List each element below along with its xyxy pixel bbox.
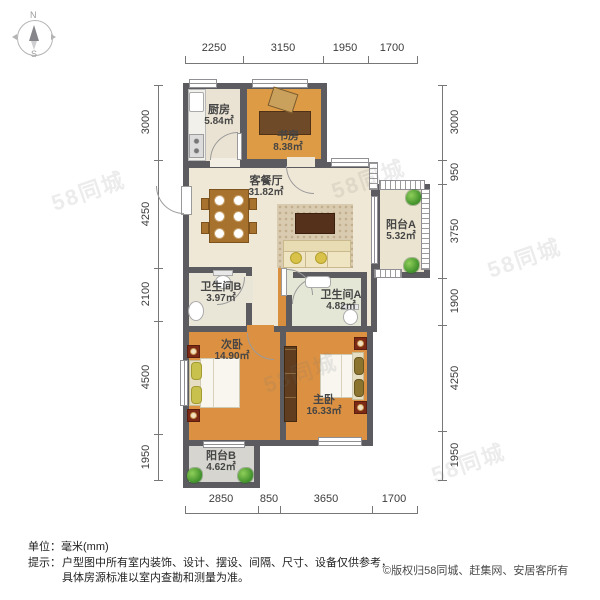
dim-right-5: 4250 [449,366,461,390]
master-bed-pillow [354,357,364,375]
compass-west-arrow [12,34,17,40]
floorplan-page: { "compass": { "north": "N", "south": "S… [0,0,600,600]
room-area: 31.82㎡ [248,187,283,199]
dim-left-4: 4500 [140,365,152,389]
dim-top-2: 3150 [271,42,295,54]
tv-cabinet [295,213,335,234]
dining-plate [233,228,244,239]
tip-line1: 户型图中所有室内装饰、设计、摆设、间隔、尺寸、设备仅供参考， [62,554,392,570]
room-name: 厨房 [204,104,233,116]
second-bedroom-window [180,360,188,406]
dim-top-3: 1950 [333,42,357,54]
wall-decor [354,401,367,414]
compass-south-label: S [31,49,37,59]
second-bedroom-door-gap [247,325,274,333]
compass: N S [8,6,60,64]
room-name: 主卧 [306,394,341,406]
master-bedroom-window [318,437,362,446]
bath-a-sink [305,276,331,288]
sofa-pillow [315,252,327,264]
wall-decor [187,409,200,422]
dining-chair [249,222,257,234]
kitchen-window [189,79,217,88]
dining-plate [233,211,244,222]
room-label-balcony-a: 阳台A 5.32㎡ [386,219,416,243]
dim-top-1: 2250 [202,42,226,54]
room-area: 8.38㎡ [273,142,302,154]
dim-top-4: 1700 [380,42,404,54]
watermark: 58同城 [47,162,130,217]
room-label-kitchen: 厨房 5.84㎡ [204,104,233,128]
compass-east-arrow [51,34,56,40]
copyright-note: ©版权归58同城、赶集网、安居客所有 [383,562,568,578]
unit-note: 单位：毫米(mm) [28,538,109,554]
room-label-second-bedroom: 次卧 14.90㎡ [214,339,249,363]
plant-icon [238,468,253,483]
dining-plate [214,228,225,239]
dining-plate [214,195,225,206]
room-name: 次卧 [214,339,249,351]
room-name: 阳台B [206,450,236,462]
dining-chair [249,198,257,210]
dim-left-1: 3000 [140,110,152,134]
room-name: 卫生间A [321,289,362,301]
room-name: 书房 [273,130,302,142]
dim-bottom-3: 3650 [314,493,338,505]
plant-icon [404,258,419,273]
master-bed-pillow [354,379,364,397]
room-label-bath-a: 卫生间A 4.82㎡ [321,289,362,313]
room-label-study: 书房 8.38㎡ [273,130,302,154]
dim-right-4: 1900 [449,289,461,313]
room-area: 4.82㎡ [321,301,362,313]
room-label-balcony-b: 阳台B 4.62㎡ [206,450,236,474]
dim-right-2: 950 [449,163,461,181]
dining-plate [233,195,244,206]
compass-needle-north [29,25,39,41]
room-name: 客餐厅 [248,175,283,187]
room-area: 5.32㎡ [386,231,416,243]
watermark: 58同城 [483,229,566,284]
dining-chair [201,222,209,234]
dim-bottom-2: 850 [260,493,278,505]
bath-b-door-gap [245,276,253,303]
dim-left-3: 2100 [140,282,152,306]
dim-bottom-4: 1700 [382,493,406,505]
room-area: 5.84㎡ [204,116,233,128]
dim-left-5: 1950 [140,445,152,469]
study-window [252,79,308,88]
dim-left-2: 4250 [140,202,152,226]
kitchen-sink [189,92,204,112]
balcony-a-sliding-door [371,196,378,264]
tip-line2: 具体房源标准以室内查勘和测量为准。 [62,569,249,585]
dim-right-3: 3750 [449,219,461,243]
room-area: 4.62㎡ [206,462,236,474]
dimension-line-top [185,56,418,64]
wall-decor [354,337,367,350]
second-bed-pillow [191,386,202,404]
dining-chair [201,198,209,210]
wall-decor [187,345,200,358]
dimension-line-bottom [185,506,418,514]
room-label-bath-b: 卫生间B 3.97㎡ [201,281,242,305]
room-area: 16.33㎡ [306,406,341,418]
room-area: 14.90㎡ [214,351,249,363]
room-area: 3.97㎡ [201,293,242,305]
room-name: 阳台A [386,219,416,231]
room-label-master-bedroom: 主卧 16.33㎡ [306,394,341,418]
sofa-pillow [290,252,302,264]
dim-bottom-1: 2850 [209,493,233,505]
room-name: 卫生间B [201,281,242,293]
balcony-a-bottom-window [374,269,402,278]
balcony-b-door-window [203,441,245,448]
dining-plate [214,211,225,222]
kitchen-stove [189,134,204,158]
dim-right-1: 3000 [449,110,461,134]
room-label-living: 客餐厅 31.82㎡ [248,175,283,199]
balcony-a-side-window [421,189,430,270]
plant-icon [406,190,421,205]
compass-north-label: N [30,10,37,20]
second-bed [200,358,240,408]
tip-label: 提示： [28,554,61,570]
second-bed-pillow [191,362,202,380]
plant-icon [187,468,202,483]
dimension-line-right [438,85,447,481]
dimension-line-left [154,85,163,481]
